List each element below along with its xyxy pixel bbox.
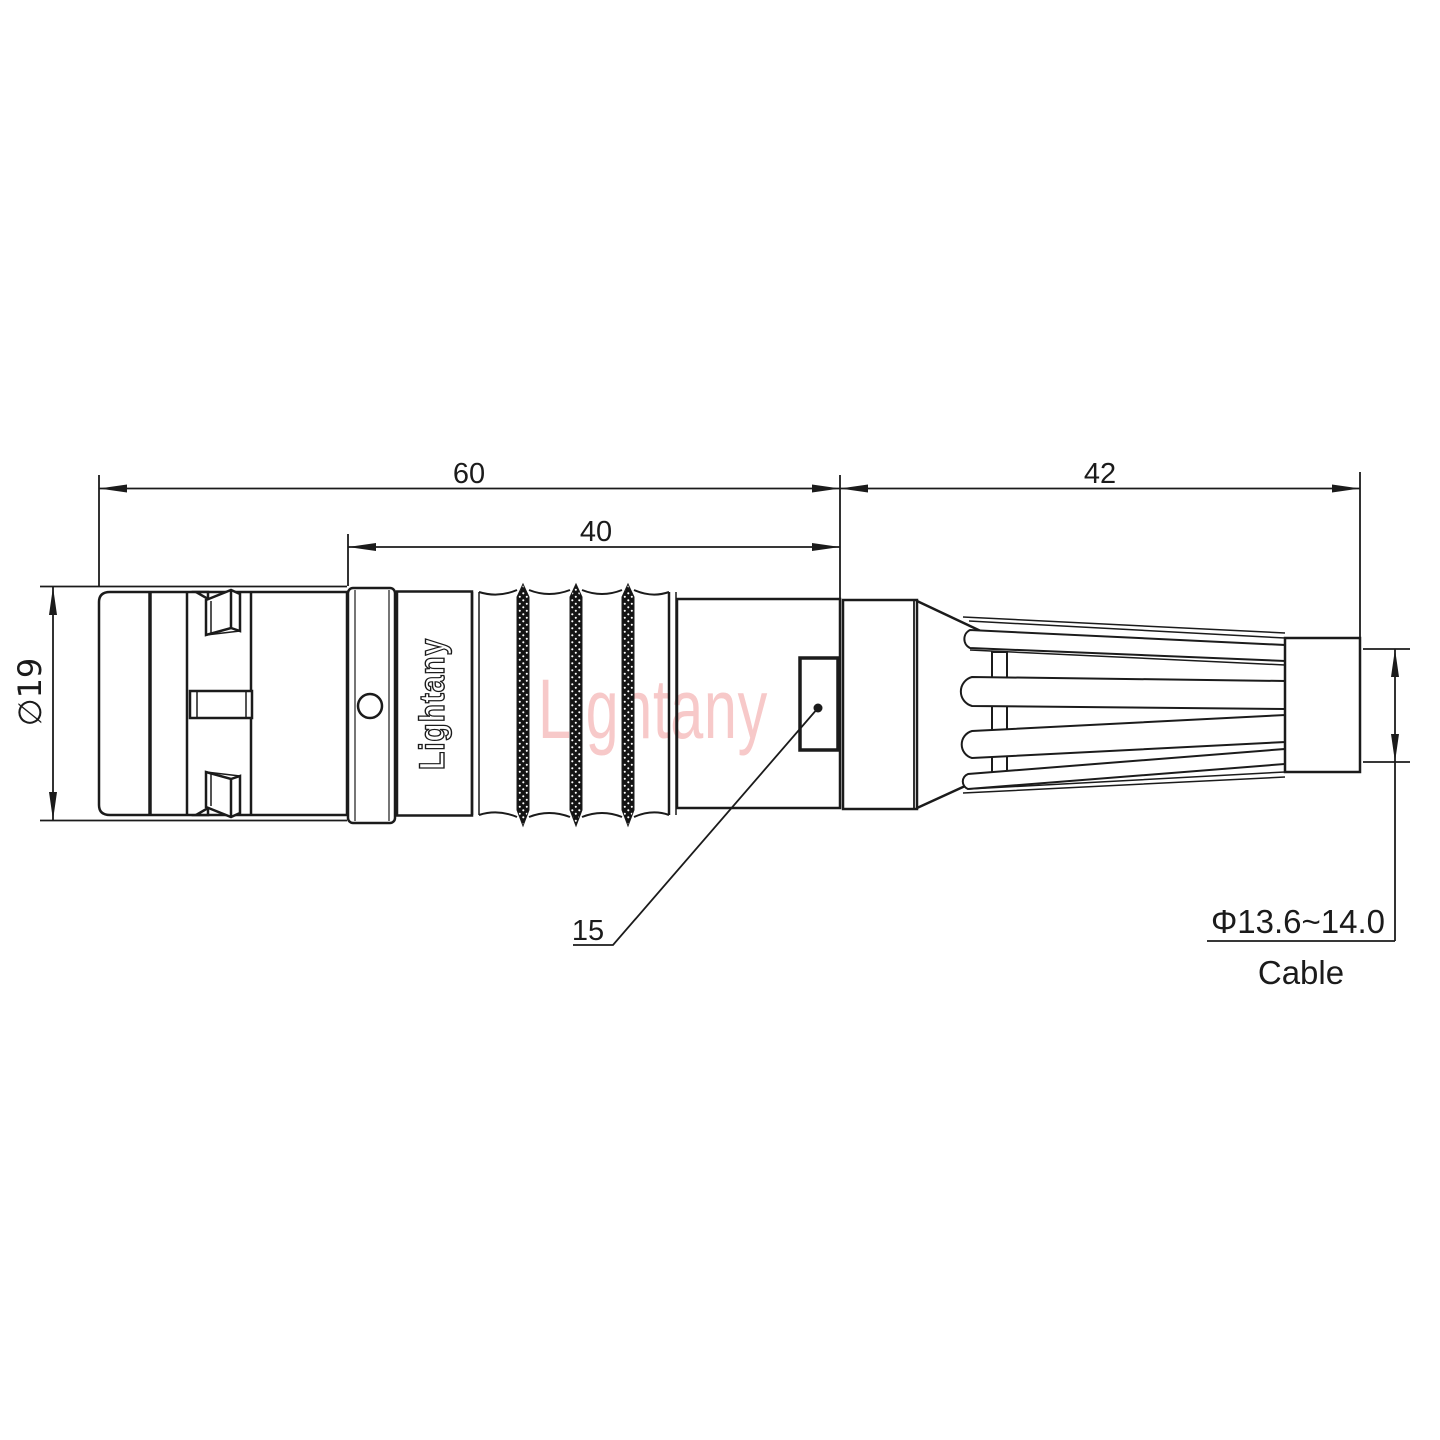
connector-drawing-svg: Lightany <box>0 0 1440 1440</box>
dim-40-text: 40 <box>580 516 612 548</box>
knurl-band-3 <box>622 584 634 826</box>
knurl-band-2 <box>570 584 582 826</box>
technical-drawing: Lightany <box>0 0 1440 1440</box>
collar-ring <box>348 588 395 823</box>
boot-link-1 <box>992 652 1007 678</box>
cable-end-sleeve <box>1285 638 1360 772</box>
leader-15-text: 15 <box>572 915 604 947</box>
boot-fin-1 <box>964 630 1285 661</box>
dimension-40: 40 <box>348 516 840 586</box>
contact-window <box>190 691 252 718</box>
strain-relief-boot <box>843 600 1360 809</box>
dim-42-text: 42 <box>1084 458 1116 490</box>
boot-link-2 <box>992 704 1007 732</box>
boot-collar <box>843 600 917 809</box>
boot-fin-2 <box>961 677 1285 709</box>
dimension-60: 60 <box>99 458 840 598</box>
body-logo-text: Lightany <box>413 638 452 770</box>
logo-barrel: Lightany <box>397 592 472 816</box>
front-shell <box>99 590 347 817</box>
dim-60-text: 60 <box>453 458 485 490</box>
boot-fin-3 <box>962 715 1285 758</box>
cable-diameter-text: Φ13.6~14.0 <box>1211 903 1385 940</box>
dim-dia19-text: ∅19 <box>11 658 49 727</box>
knurl-band-1 <box>517 584 529 826</box>
cable-label-text: Cable <box>1258 954 1344 991</box>
